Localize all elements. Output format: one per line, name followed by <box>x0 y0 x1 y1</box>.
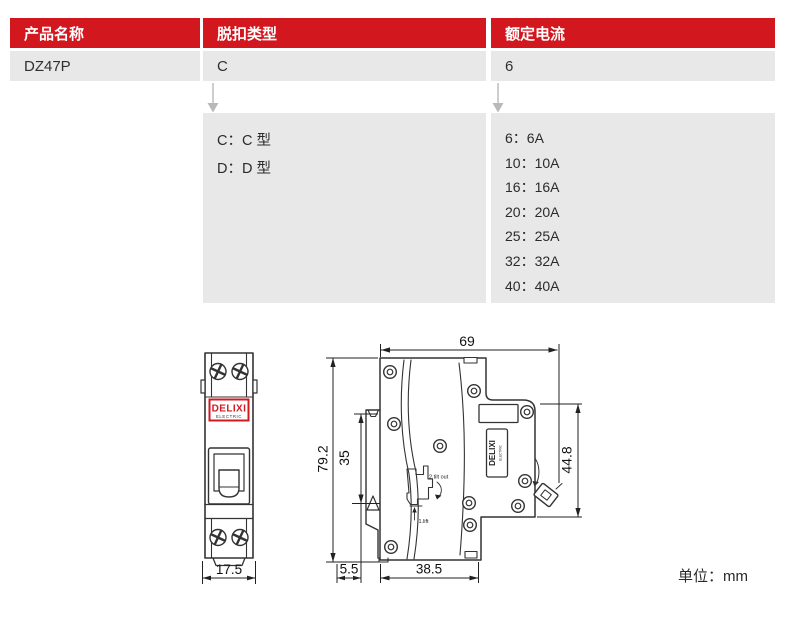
rivet-icon <box>519 475 532 488</box>
rivet-icon <box>463 497 476 510</box>
side-view: DELIXI ELECTRIC 2.tilt out <box>315 333 583 583</box>
dim-79-2: 79.2 <box>315 445 331 472</box>
brand-name-side: DELIXI <box>488 440 497 466</box>
rating-item: 20：20A <box>505 200 775 225</box>
trip-type-item: C：C 型 <box>217 127 486 155</box>
product-spec-page: 产品名称 脱扣类型 额定电流 DZ47P C 6 C：C 型 D：D 型 6：6… <box>0 0 786 619</box>
table-header-trip-type: 脱扣类型 <box>203 18 486 48</box>
trip-type-legend-box: C：C 型 D：D 型 <box>203 113 486 303</box>
brand-name: DELIXI <box>212 404 247 415</box>
rating-item: 32：32A <box>505 249 775 274</box>
table-value-rated-current: 6 <box>491 51 775 81</box>
rivet-icon <box>388 418 401 431</box>
rivet-icon <box>464 519 477 532</box>
brand-subtitle: ELECTRIC <box>216 414 242 419</box>
down-arrow-icon <box>206 83 220 113</box>
dim-38-5: 38.5 <box>416 562 442 577</box>
brand-label-side: DELIXI ELECTRIC <box>487 429 508 477</box>
rivet-icon <box>512 500 525 513</box>
trip-type-item: D：D 型 <box>217 155 486 183</box>
rating-item: 10：10A <box>505 151 775 176</box>
dimension-rail-offset: 5.5 <box>337 562 361 584</box>
table-value-product-name: DZ47P <box>10 51 200 81</box>
dimension-front-width: 17.5 <box>203 561 256 584</box>
table-header-product-name: 产品名称 <box>10 18 200 48</box>
technical-drawing: DELIXI ELECTRIC 17.5 <box>185 332 595 588</box>
down-arrow-icon <box>491 83 505 113</box>
flow-arrow-trip-type <box>206 83 220 113</box>
dim-44-8: 44.8 <box>559 446 575 473</box>
dim-35: 35 <box>336 450 352 466</box>
table-value-trip-type: C <box>203 51 486 81</box>
rating-item: 25：25A <box>505 224 775 249</box>
rivet-icon <box>434 440 447 453</box>
rated-current-legend-box: 6：6A 10：10A 16：16A 20：20A 25：25A 32：32A … <box>491 113 775 303</box>
dim-5-5: 5.5 <box>340 562 359 577</box>
rating-item: 40：40A <box>505 274 775 299</box>
dimension-body-depth: 38.5 <box>381 562 479 584</box>
rivet-icon <box>468 385 481 398</box>
toggle-switch <box>209 448 250 504</box>
brand-label: DELIXI ELECTRIC <box>210 400 249 421</box>
front-view: DELIXI ELECTRIC 17.5 <box>201 353 257 584</box>
rivet-icon <box>385 541 398 554</box>
unit-label: 单位：mm <box>678 565 748 586</box>
note-lift: 1.lift <box>419 519 430 525</box>
dim-17-5: 17.5 <box>216 562 242 577</box>
brand-subtitle-side: ELECTRIC <box>499 444 503 460</box>
dim-69: 69 <box>459 333 475 349</box>
rating-item: 16：16A <box>505 175 775 200</box>
rivet-icon <box>521 406 534 419</box>
note-tilt-out: 2.tilt out <box>429 475 449 481</box>
table-header-rated-current: 额定电流 <box>491 18 775 48</box>
rating-item: 6：6A <box>505 126 775 151</box>
flow-arrow-rated-current <box>491 83 505 113</box>
rivet-icon <box>384 366 397 379</box>
